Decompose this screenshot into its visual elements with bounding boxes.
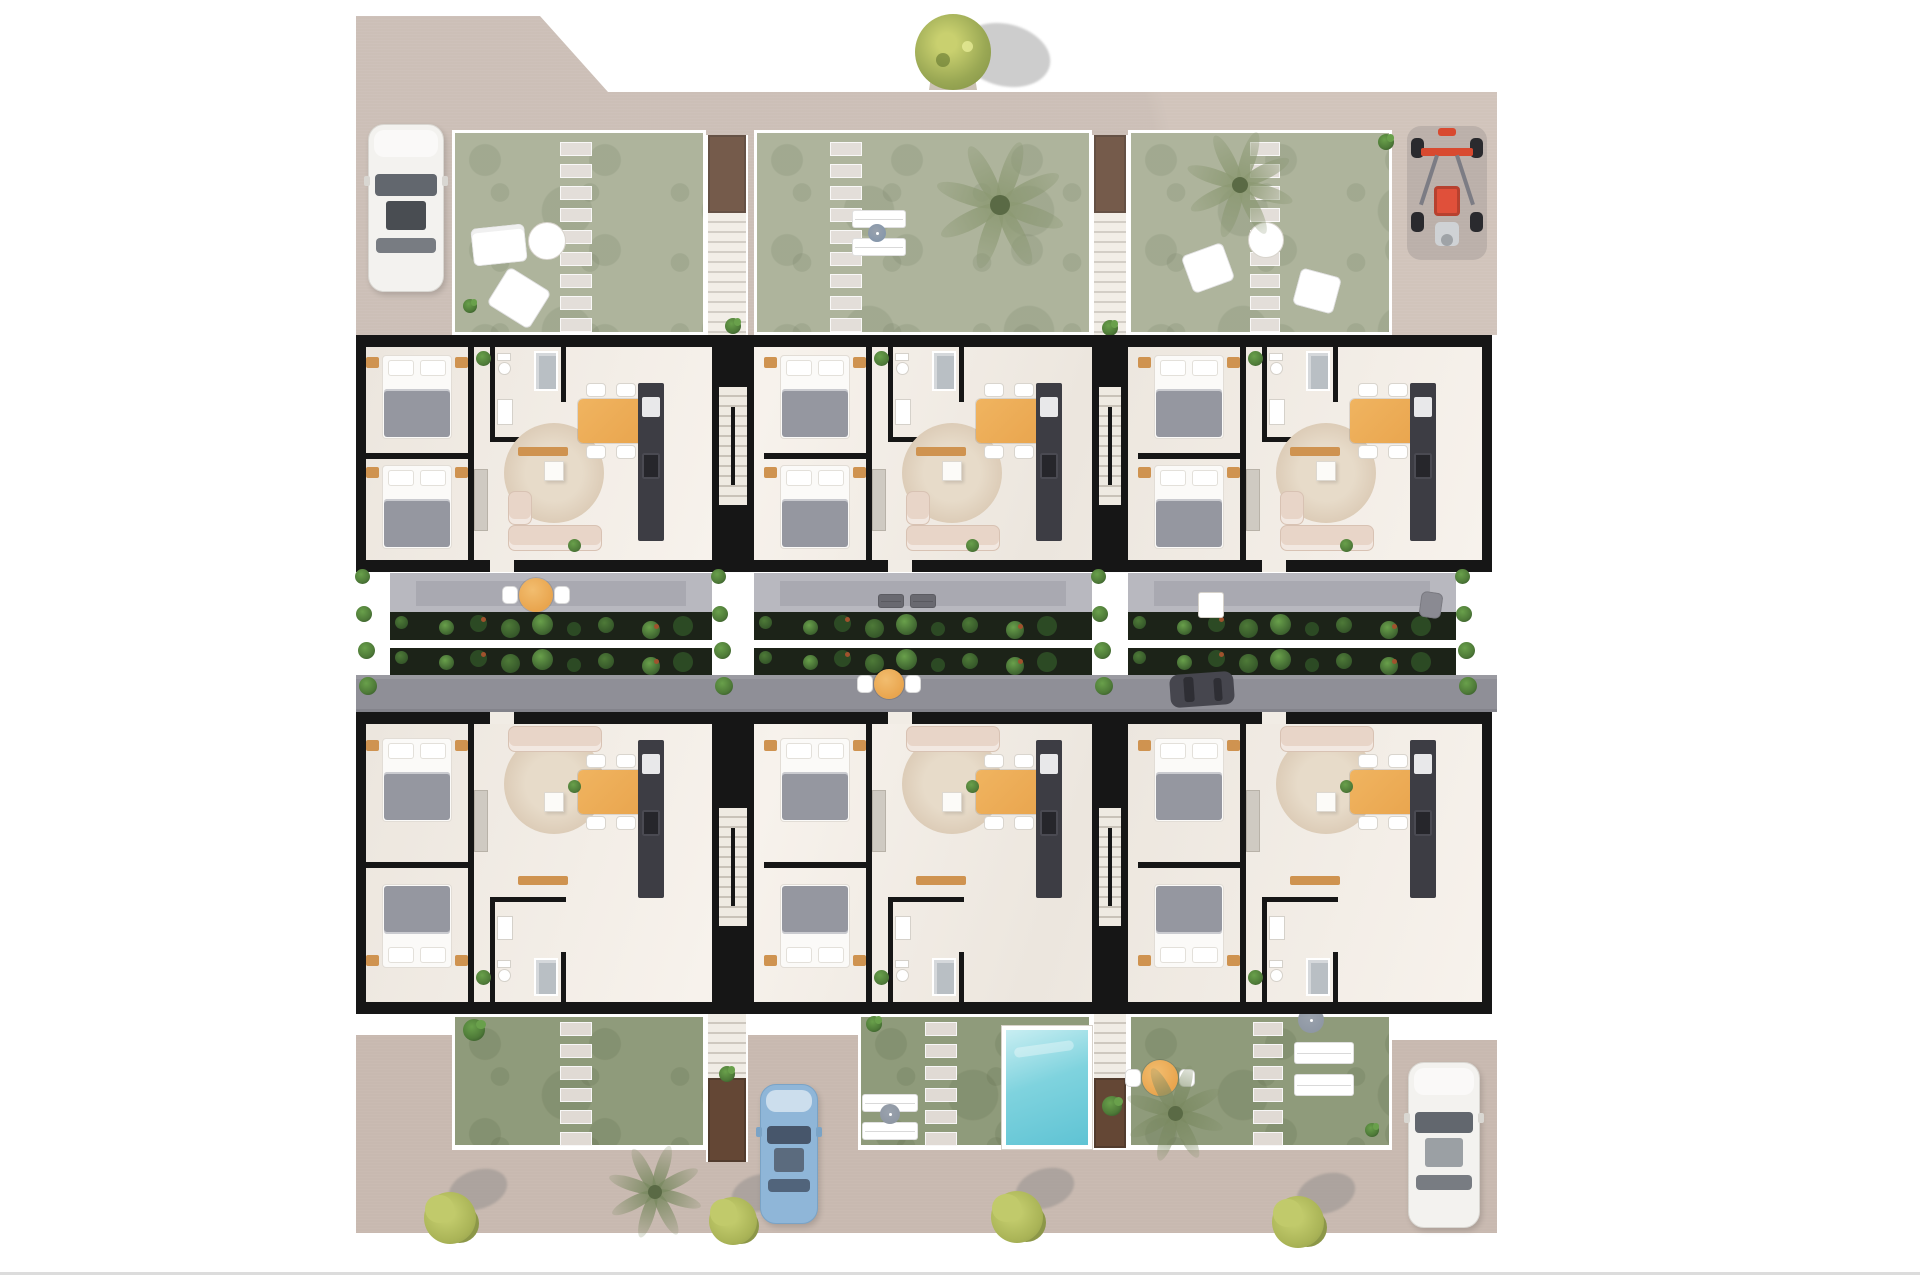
planter-plant <box>439 620 454 635</box>
garden-sofa <box>470 223 528 266</box>
bathroom-vanity <box>1269 399 1285 425</box>
bed-pillow <box>786 470 812 486</box>
car-hood-highlight <box>374 130 438 157</box>
chair <box>857 675 873 693</box>
planter-plant <box>803 655 818 670</box>
stepping-stone <box>560 208 592 222</box>
walkway-plant <box>359 677 377 695</box>
planter-plant <box>1239 654 1258 673</box>
dining-chair <box>616 445 636 459</box>
planter-flower <box>481 617 486 622</box>
door-gap <box>888 712 912 724</box>
bed-blanket <box>1156 389 1222 437</box>
door-gap <box>1262 712 1286 724</box>
bed-blanket <box>782 886 848 934</box>
interior-wall <box>366 453 468 459</box>
planter-plant <box>532 614 553 635</box>
bathroom-vanity <box>1269 916 1285 940</box>
planter-plant <box>673 616 693 636</box>
planter-plant <box>598 617 614 633</box>
stairs-bottom-left-landing <box>708 1078 746 1162</box>
sofa <box>508 491 532 525</box>
planter-plant <box>439 655 454 670</box>
plant-leaf <box>1111 320 1118 327</box>
car-windshield <box>1415 1112 1473 1134</box>
stepping-stone <box>560 186 592 200</box>
car-glass <box>1183 677 1195 703</box>
buggy-wheel <box>1470 212 1483 232</box>
sofa <box>1280 525 1374 551</box>
lounger-line <box>865 1131 915 1132</box>
walkway-plant <box>1095 677 1113 695</box>
walkway-plant <box>1455 569 1470 584</box>
coffee-table <box>942 461 962 481</box>
bathroom-vanity <box>497 399 513 425</box>
plant-leaf <box>875 1016 882 1023</box>
planter-plant <box>501 619 520 638</box>
shower <box>534 351 558 391</box>
bed-pillow <box>1192 743 1218 759</box>
street-table <box>874 669 904 699</box>
nightstand <box>455 467 468 478</box>
kitchen-stove <box>1040 810 1058 836</box>
dining-chair <box>1358 754 1378 768</box>
kitchen-sink <box>1040 754 1058 774</box>
nightstand <box>455 955 468 966</box>
stepping-stone <box>830 142 862 156</box>
nightstand <box>853 467 866 478</box>
planter-plant <box>1133 651 1146 664</box>
planter-flower <box>654 659 659 664</box>
toilet <box>1269 353 1283 361</box>
nightstand <box>764 740 777 751</box>
wardrobe <box>872 790 886 852</box>
house-plant <box>1248 351 1263 366</box>
car-sunroof <box>774 1148 804 1172</box>
car-rear-window <box>768 1179 810 1192</box>
bush-lobe <box>710 1199 736 1225</box>
terrace-table <box>519 578 553 612</box>
sideboard <box>518 876 568 885</box>
nightstand <box>1138 740 1151 751</box>
exterior-wall-right <box>1482 335 1492 572</box>
planter-plant <box>1239 619 1258 638</box>
bed-pillow <box>388 470 414 486</box>
stepping-stone <box>560 252 592 266</box>
toilet-bowl <box>498 362 511 375</box>
plant-leaf <box>734 318 741 325</box>
nightstand <box>853 955 866 966</box>
dining-chair <box>616 816 636 830</box>
plant-leaf <box>1373 1123 1379 1129</box>
planter-flower <box>654 624 659 629</box>
kitchen-stove <box>1414 810 1432 836</box>
house-plant <box>874 970 889 985</box>
tree-leaf-spot <box>936 53 950 67</box>
planter-flower <box>1219 652 1224 657</box>
interior-wall <box>1262 347 1267 442</box>
planter-plant <box>896 649 917 670</box>
nightstand <box>366 357 379 368</box>
stepping-stone <box>925 1022 957 1036</box>
interior-wall <box>468 724 474 1002</box>
stepping-stone <box>560 1132 592 1146</box>
dining-table <box>1350 770 1416 814</box>
house-plant <box>568 780 581 793</box>
bed-pillow <box>786 360 812 376</box>
dining-chair <box>1014 816 1034 830</box>
bed-blanket <box>384 772 450 820</box>
interior-wall <box>1262 902 1267 1002</box>
planter-plant <box>1411 652 1431 672</box>
plant-leaf <box>476 1020 486 1030</box>
stepping-stone <box>560 1088 592 1102</box>
plant-leaf <box>1387 134 1394 141</box>
dining-chair <box>1388 816 1408 830</box>
sideboard <box>1290 876 1340 885</box>
planter-plant <box>1177 620 1192 635</box>
stepping-stone <box>925 1132 957 1146</box>
interior-wall <box>764 453 866 459</box>
shower <box>932 351 956 391</box>
terrace-chair <box>1418 591 1443 620</box>
car-mirror <box>816 1127 822 1137</box>
stepping-stone <box>830 318 862 332</box>
walkway-plant <box>1459 677 1477 695</box>
sofa <box>508 525 602 551</box>
stepping-stone <box>1250 296 1280 310</box>
dining-chair <box>1388 383 1408 397</box>
wardrobe <box>474 790 488 852</box>
nightstand <box>455 740 468 751</box>
bed-pillow <box>1160 470 1186 486</box>
walkway-plant <box>711 569 726 584</box>
bed-pillow <box>420 470 446 486</box>
bed-pillow <box>1192 470 1218 486</box>
stepping-stone <box>560 296 592 310</box>
stepping-stone <box>1253 1066 1283 1080</box>
car-mirror <box>364 176 370 186</box>
buggy-frame-bar <box>1421 148 1473 156</box>
house-plant <box>874 351 889 366</box>
dining-chair <box>984 445 1004 459</box>
coffee-table <box>1316 792 1336 812</box>
car-hood-highlight <box>766 1090 812 1112</box>
toilet-bowl <box>896 362 909 375</box>
nightstand <box>1227 357 1240 368</box>
lounger-line <box>855 247 903 248</box>
dining-chair <box>1388 754 1408 768</box>
door-gap <box>1262 560 1286 572</box>
dining-chair <box>1358 445 1378 459</box>
bed-blanket <box>782 772 848 820</box>
door-gap <box>490 560 514 572</box>
stairs-bottom-right-treads <box>1094 1014 1126 1078</box>
interior-wall <box>490 897 566 902</box>
house-plant <box>1340 780 1353 793</box>
kitchen-stove <box>642 810 660 836</box>
nightstand <box>853 357 866 368</box>
nightstand <box>764 467 777 478</box>
stepping-stone <box>560 318 592 332</box>
car-rear-window <box>376 238 436 253</box>
stairs-top-right-treads <box>1094 213 1126 335</box>
house-plant <box>1248 970 1263 985</box>
nightstand <box>1227 740 1240 751</box>
parasol-tip <box>876 232 879 235</box>
dining-table <box>976 770 1042 814</box>
house-plant <box>476 970 491 985</box>
planter-plant <box>395 651 408 664</box>
nightstand <box>1227 955 1240 966</box>
interior-wall <box>1333 952 1338 1002</box>
toilet-bowl <box>498 969 511 982</box>
stepping-stone <box>925 1044 957 1058</box>
stairs-top-left-treads <box>708 213 746 335</box>
dining-chair <box>586 383 606 397</box>
kitchen-sink <box>642 397 660 417</box>
exterior-wall-bottom <box>356 1002 1492 1014</box>
bed-blanket <box>384 389 450 437</box>
door-gap <box>490 712 514 724</box>
planter-plant <box>1270 649 1291 670</box>
walkway-plant <box>355 569 370 584</box>
walkway-plant <box>1456 606 1472 622</box>
street <box>356 675 1497 712</box>
tree <box>915 14 991 90</box>
stepping-stone <box>830 186 862 200</box>
planter-plant <box>931 622 945 636</box>
sideboard <box>916 447 966 456</box>
dining-chair <box>1014 445 1034 459</box>
tree-leaf-spot <box>962 41 973 52</box>
bush-lobe <box>425 1195 454 1224</box>
planter-plant <box>598 653 614 669</box>
interior-wall <box>888 347 893 442</box>
house-plant <box>966 539 979 552</box>
shower <box>932 958 956 996</box>
nightstand <box>764 357 777 368</box>
bed-pillow <box>818 470 844 486</box>
toilet <box>497 353 511 361</box>
stepping-stone <box>560 1110 592 1124</box>
lounger-line <box>881 601 901 602</box>
stepping-stone <box>925 1088 957 1102</box>
stepping-stone <box>830 164 862 178</box>
terrace-table-sq <box>1198 592 1224 618</box>
chair <box>554 586 570 604</box>
nightstand <box>764 955 777 966</box>
sofa <box>508 726 602 752</box>
stepping-stone <box>830 274 862 288</box>
car-hood-highlight <box>1414 1068 1474 1095</box>
stepping-stone <box>1253 1110 1283 1124</box>
interior-wall <box>1262 897 1338 902</box>
exterior-wall-left <box>356 335 366 572</box>
stair-core-divider <box>1108 407 1112 485</box>
planter-flower <box>1392 659 1397 664</box>
lounger-line <box>1297 1085 1351 1086</box>
wardrobe <box>872 469 886 531</box>
walkway-plant <box>356 606 372 622</box>
planter-plant <box>759 616 772 629</box>
toilet <box>497 960 511 968</box>
planter-plant <box>673 652 693 672</box>
interior-wall <box>1138 862 1240 868</box>
shower <box>534 958 558 996</box>
coffee-table <box>942 792 962 812</box>
nightstand <box>1138 467 1151 478</box>
dining-chair <box>1014 754 1034 768</box>
dining-table <box>976 399 1042 443</box>
parasol-tip <box>1310 1019 1313 1022</box>
planter-plant <box>1336 653 1352 669</box>
stair-core-divider <box>731 828 735 906</box>
house-plant <box>966 780 979 793</box>
nightstand <box>853 740 866 751</box>
bed-pillow <box>388 360 414 376</box>
sofa <box>906 525 1000 551</box>
planter-plant <box>962 617 978 633</box>
bush-lobe <box>992 1194 1021 1223</box>
site-plan-render <box>0 0 1920 1280</box>
bathroom-vanity <box>497 916 513 940</box>
bed-pillow <box>420 743 446 759</box>
kitchen-stove <box>1040 453 1058 479</box>
planter-plant <box>1037 652 1057 672</box>
stepping-stone <box>1253 1022 1283 1036</box>
nightstand <box>366 955 379 966</box>
kitchen-sink <box>642 754 660 774</box>
bed-pillow <box>420 360 446 376</box>
door-gap <box>888 560 912 572</box>
car-mirror <box>1404 1113 1410 1123</box>
planter-plant <box>803 620 818 635</box>
sideboard <box>1290 447 1340 456</box>
interior-wall <box>1240 724 1246 1002</box>
planter-plant <box>1037 616 1057 636</box>
stepping-stone <box>925 1110 957 1124</box>
wardrobe <box>1246 469 1260 531</box>
car-rear-window <box>1416 1175 1472 1190</box>
bed-pillow <box>818 743 844 759</box>
walkway-plant <box>1092 606 1108 622</box>
lounger-line <box>1297 1053 1351 1054</box>
bed-pillow <box>786 743 812 759</box>
bed-pillow <box>388 743 414 759</box>
toilet <box>895 353 909 361</box>
kitchen-sink <box>1040 397 1058 417</box>
dining-table <box>1350 399 1416 443</box>
bed-pillow <box>818 947 844 963</box>
car-dark-street <box>1169 671 1235 708</box>
planter-plant <box>1305 658 1319 672</box>
planter-plant <box>567 658 581 672</box>
car-sunroof <box>1425 1138 1462 1166</box>
planter-plant <box>1411 616 1431 636</box>
garden-top-2 <box>754 130 1092 335</box>
dining-chair <box>1358 383 1378 397</box>
sofa <box>1280 726 1374 752</box>
interior-wall <box>888 897 964 902</box>
toilet-bowl <box>1270 969 1283 982</box>
stairs-top-right-landing <box>1094 135 1126 213</box>
car-glass <box>1213 678 1222 701</box>
planter-flower <box>1392 624 1397 629</box>
garden-table <box>528 222 566 260</box>
kitchen-sink <box>1414 397 1432 417</box>
planter-flower <box>845 652 850 657</box>
plant-leaf <box>728 1066 735 1073</box>
stepping-stone <box>1253 1132 1283 1146</box>
house-plant <box>476 351 491 366</box>
bed-blanket <box>1156 499 1222 547</box>
nightstand <box>1227 467 1240 478</box>
stepping-stone <box>560 1022 592 1036</box>
bed-blanket <box>1156 772 1222 820</box>
planter-plant <box>1336 617 1352 633</box>
sofa <box>906 726 1000 752</box>
car-mirror <box>1478 1113 1484 1123</box>
bed-blanket <box>782 499 848 547</box>
planter-flower <box>481 652 486 657</box>
planter-plant <box>962 653 978 669</box>
walkway-plant <box>712 606 728 622</box>
buggy-seat <box>1434 186 1460 216</box>
interior-wall <box>866 724 872 1002</box>
bed-pillow <box>786 947 812 963</box>
exterior-wall-right <box>1482 712 1492 1014</box>
stepping-stone <box>560 142 592 156</box>
dining-chair <box>984 383 1004 397</box>
planter-flower <box>1018 659 1023 664</box>
chair <box>1125 1069 1141 1087</box>
bush-lobe <box>1273 1199 1302 1228</box>
lounger-line <box>855 219 903 220</box>
terrace-inner <box>1154 581 1430 606</box>
toilet-bowl <box>896 969 909 982</box>
walkway-plant <box>715 677 733 695</box>
exterior-wall-left <box>356 712 366 1014</box>
planter-flower <box>845 617 850 622</box>
walkway-plant <box>714 642 731 659</box>
interior-wall <box>959 952 964 1002</box>
dining-chair <box>984 816 1004 830</box>
bed-pillow <box>420 947 446 963</box>
wardrobe <box>474 469 488 531</box>
buggy-engine-cap <box>1441 234 1453 246</box>
planter-plant <box>865 619 884 638</box>
dining-chair <box>586 445 606 459</box>
car-sunroof <box>386 201 426 230</box>
walkway-plant <box>1091 569 1106 584</box>
sofa <box>1280 491 1304 525</box>
bed-pillow <box>818 360 844 376</box>
dining-table <box>578 770 644 814</box>
exterior-wall-bottom <box>356 560 1492 572</box>
planter-flower <box>1018 624 1023 629</box>
interior-wall <box>561 952 566 1002</box>
car-windshield <box>767 1126 811 1144</box>
bed-pillow <box>1192 947 1218 963</box>
stepping-stone <box>560 1066 592 1080</box>
planter-plant <box>896 614 917 635</box>
buggy-wheel <box>1411 212 1424 232</box>
shower <box>1306 958 1330 996</box>
dining-chair <box>1388 445 1408 459</box>
coffee-table <box>544 461 564 481</box>
dining-table <box>578 399 644 443</box>
